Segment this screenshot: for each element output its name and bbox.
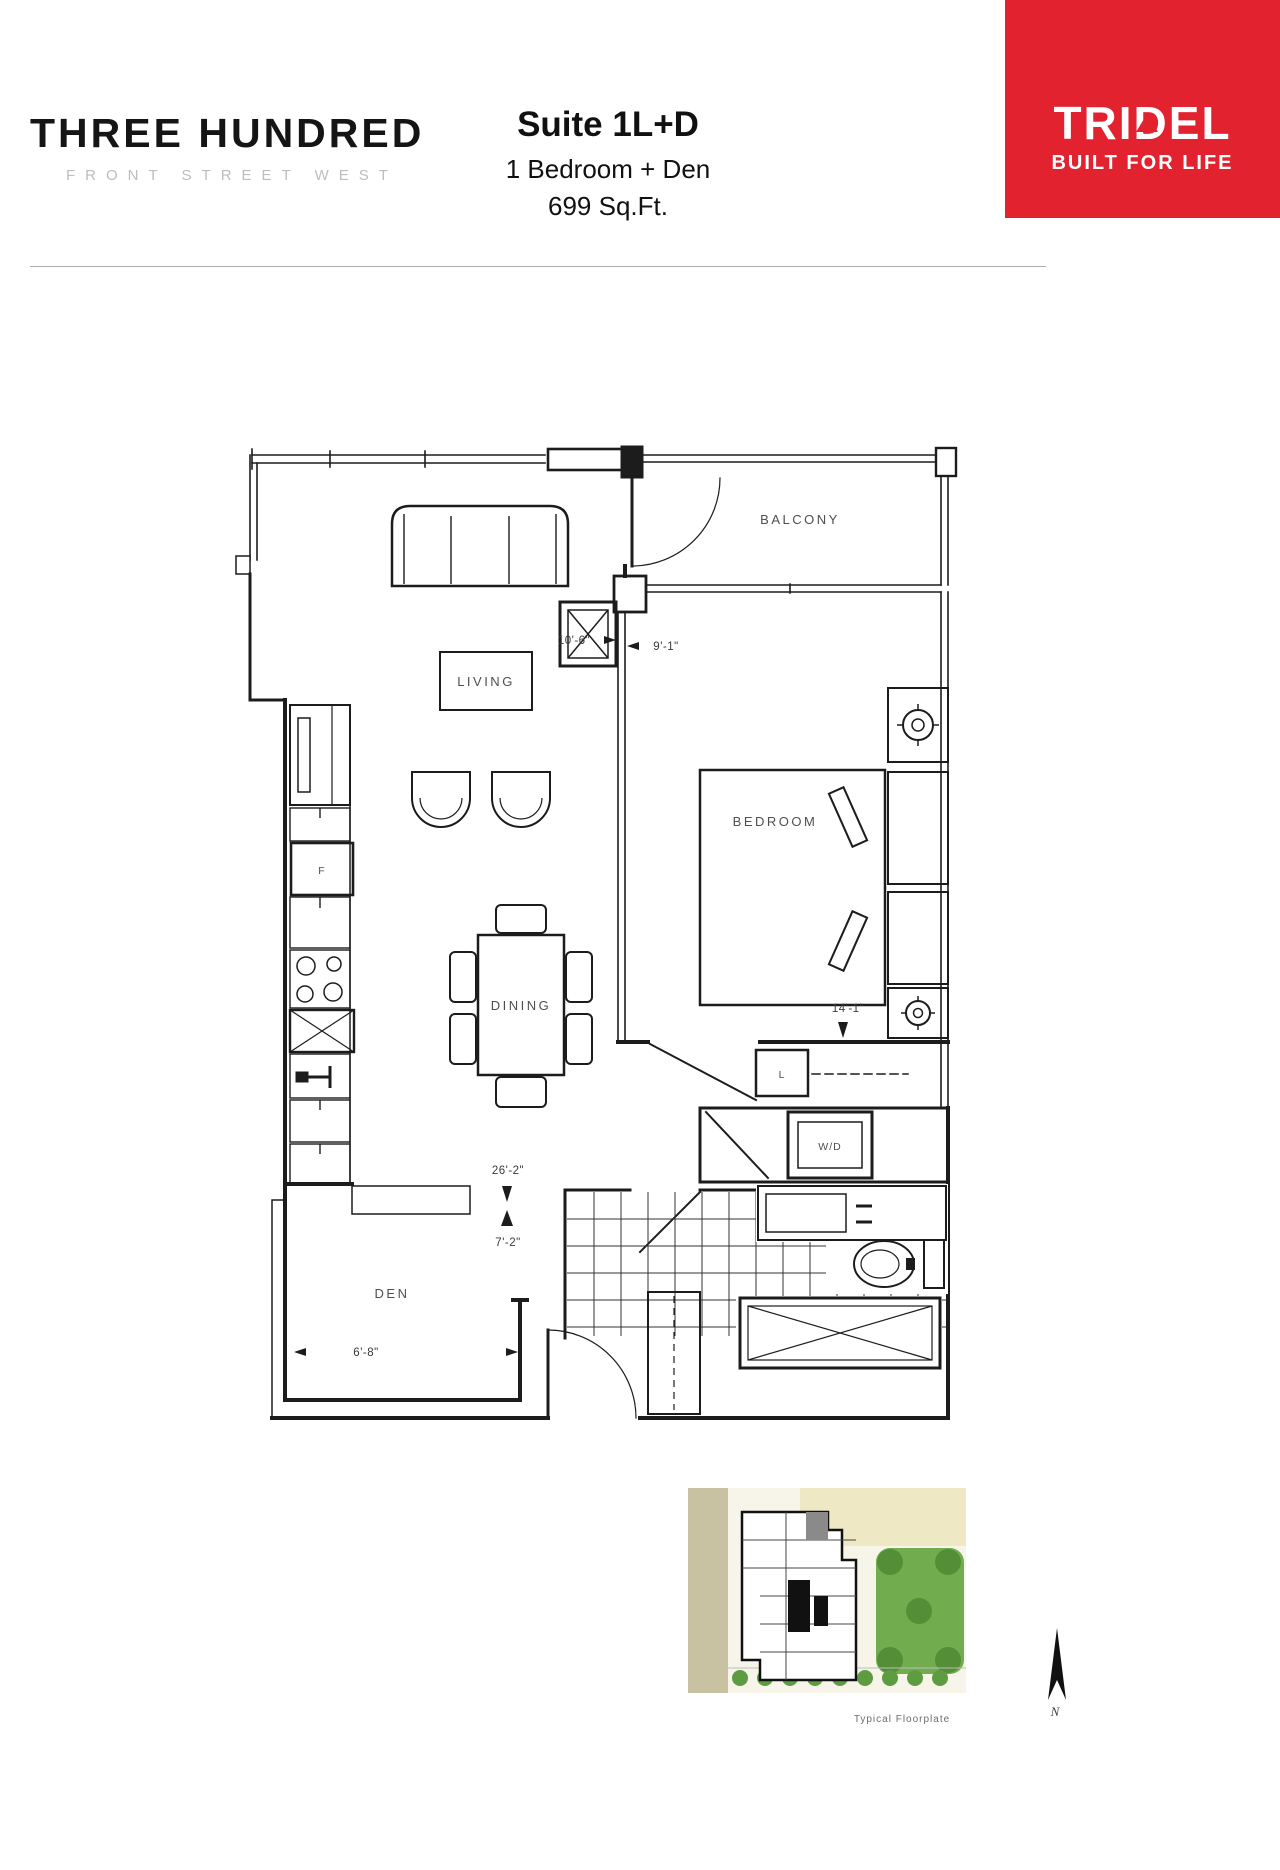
bed-icon <box>700 770 885 1005</box>
kitchen <box>290 705 354 1184</box>
dim-den-width: 6'-8" <box>353 1347 378 1359</box>
light-fixture-icon <box>888 988 948 1038</box>
highlighted-unit <box>806 1512 828 1540</box>
building-footprint <box>742 1512 856 1680</box>
bathroom <box>567 1184 948 1374</box>
light-fixture-icon <box>888 688 948 762</box>
foyer-closet <box>648 1292 700 1414</box>
floor-plan-drawing: BALCONY LIVING BEDROOM DINING DEN W/D L … <box>0 0 1280 1870</box>
dining-label: DINING <box>491 998 552 1013</box>
sofa-icon <box>392 506 568 586</box>
pillow-icon <box>829 787 867 846</box>
dim-bedroom-width: 9'-1" <box>653 641 678 653</box>
balcony-label: BALCONY <box>760 512 840 527</box>
dim-hall-width: 7'-2" <box>495 1237 520 1249</box>
dim-arrow-right-icon <box>506 1348 518 1356</box>
shaft-x-icon <box>560 602 616 666</box>
dim-arrow-down-icon <box>502 1186 512 1202</box>
laundry-label: W/D <box>818 1141 841 1153</box>
armchair-icon <box>412 772 470 827</box>
dim-arrow-up-icon <box>501 1210 513 1226</box>
faucet-icon <box>296 1066 330 1088</box>
site-key-plan: Typical Floorplate <box>688 1488 966 1725</box>
bedroom-area <box>700 688 948 1038</box>
dim-arrow-right-icon <box>604 636 616 644</box>
linen-label: L <box>779 1069 786 1081</box>
dim-arrow-left-icon <box>294 1348 306 1356</box>
living-label: LIVING <box>457 674 515 689</box>
floorplan-page: THREE HUNDRED FRONT STREET WEST Suite 1L… <box>0 0 1280 1870</box>
dim-bedroom-length: 14'-1" <box>832 1003 864 1015</box>
north-arrow-icon: N <box>1048 1628 1066 1719</box>
armchair-icon <box>492 772 550 827</box>
dim-living-width: 10'-6" <box>558 635 590 647</box>
den-label: DEN <box>375 1286 410 1301</box>
dimensions: 10'-6" 9'-1" 14'-1" 26'-2" 7'-2" 6'-8" <box>294 635 864 1359</box>
dim-arrow-down-icon <box>838 1022 848 1038</box>
park-green <box>876 1548 964 1674</box>
north-label: N <box>1050 1704 1061 1719</box>
site-plan-caption: Typical Floorplate <box>854 1714 950 1725</box>
fridge-label: F <box>318 865 325 877</box>
dim-arrow-left-icon <box>627 642 639 650</box>
bedroom-label: BEDROOM <box>733 814 818 829</box>
road-strip <box>688 1488 728 1693</box>
dim-overall-length: 26'-2" <box>492 1165 524 1177</box>
pillow-icon <box>829 911 867 970</box>
living-room <box>392 506 568 827</box>
